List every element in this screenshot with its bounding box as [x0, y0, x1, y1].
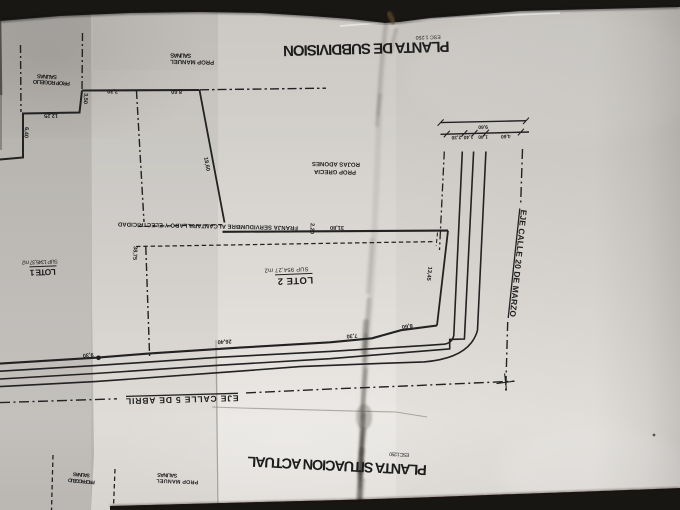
svg-text:7,30: 7,30 [346, 332, 357, 339]
svg-text:SALINAS: SALINAS [170, 51, 191, 57]
svg-text:9,60: 9,60 [478, 123, 488, 129]
svg-text:ESC 1:250: ESC 1:250 [389, 450, 409, 457]
svg-text:LOTE 2: LOTE 2 [277, 274, 313, 286]
svg-text:8,60: 8,60 [171, 88, 182, 94]
svg-text:ESC 1:250: ESC 1:250 [415, 33, 440, 40]
svg-text:2,20: 2,20 [308, 223, 315, 234]
svg-text:6,40: 6,40 [22, 127, 29, 138]
svg-text:12,25: 12,25 [44, 112, 58, 118]
svg-text:9,30: 9,30 [82, 351, 93, 358]
svg-text:PROP GRECIA: PROP GRECIA [313, 168, 356, 175]
svg-text:LOTE 1: LOTE 1 [29, 267, 56, 278]
svg-text:PROP MANUEL: PROP MANUEL [170, 58, 214, 65]
svg-text:1,40: 1,40 [463, 134, 473, 140]
svg-text:4,60: 4,60 [501, 133, 511, 139]
svg-text:SALINAS: SALINAS [157, 471, 178, 478]
svg-text:ROJAS ADONES: ROJAS ADONES [312, 160, 360, 167]
svg-text:7,30: 7,30 [107, 88, 118, 94]
svg-text:31,80: 31,80 [330, 224, 344, 230]
svg-text:SUP 1345,37 m2: SUP 1345,37 m2 [22, 258, 58, 265]
svg-text:2,30: 2,30 [451, 134, 461, 140]
svg-text:1,40: 1,40 [478, 133, 488, 139]
svg-text:3,50: 3,50 [82, 93, 89, 104]
svg-text:26,40: 26,40 [217, 338, 231, 345]
svg-text:38,75: 38,75 [131, 246, 138, 260]
